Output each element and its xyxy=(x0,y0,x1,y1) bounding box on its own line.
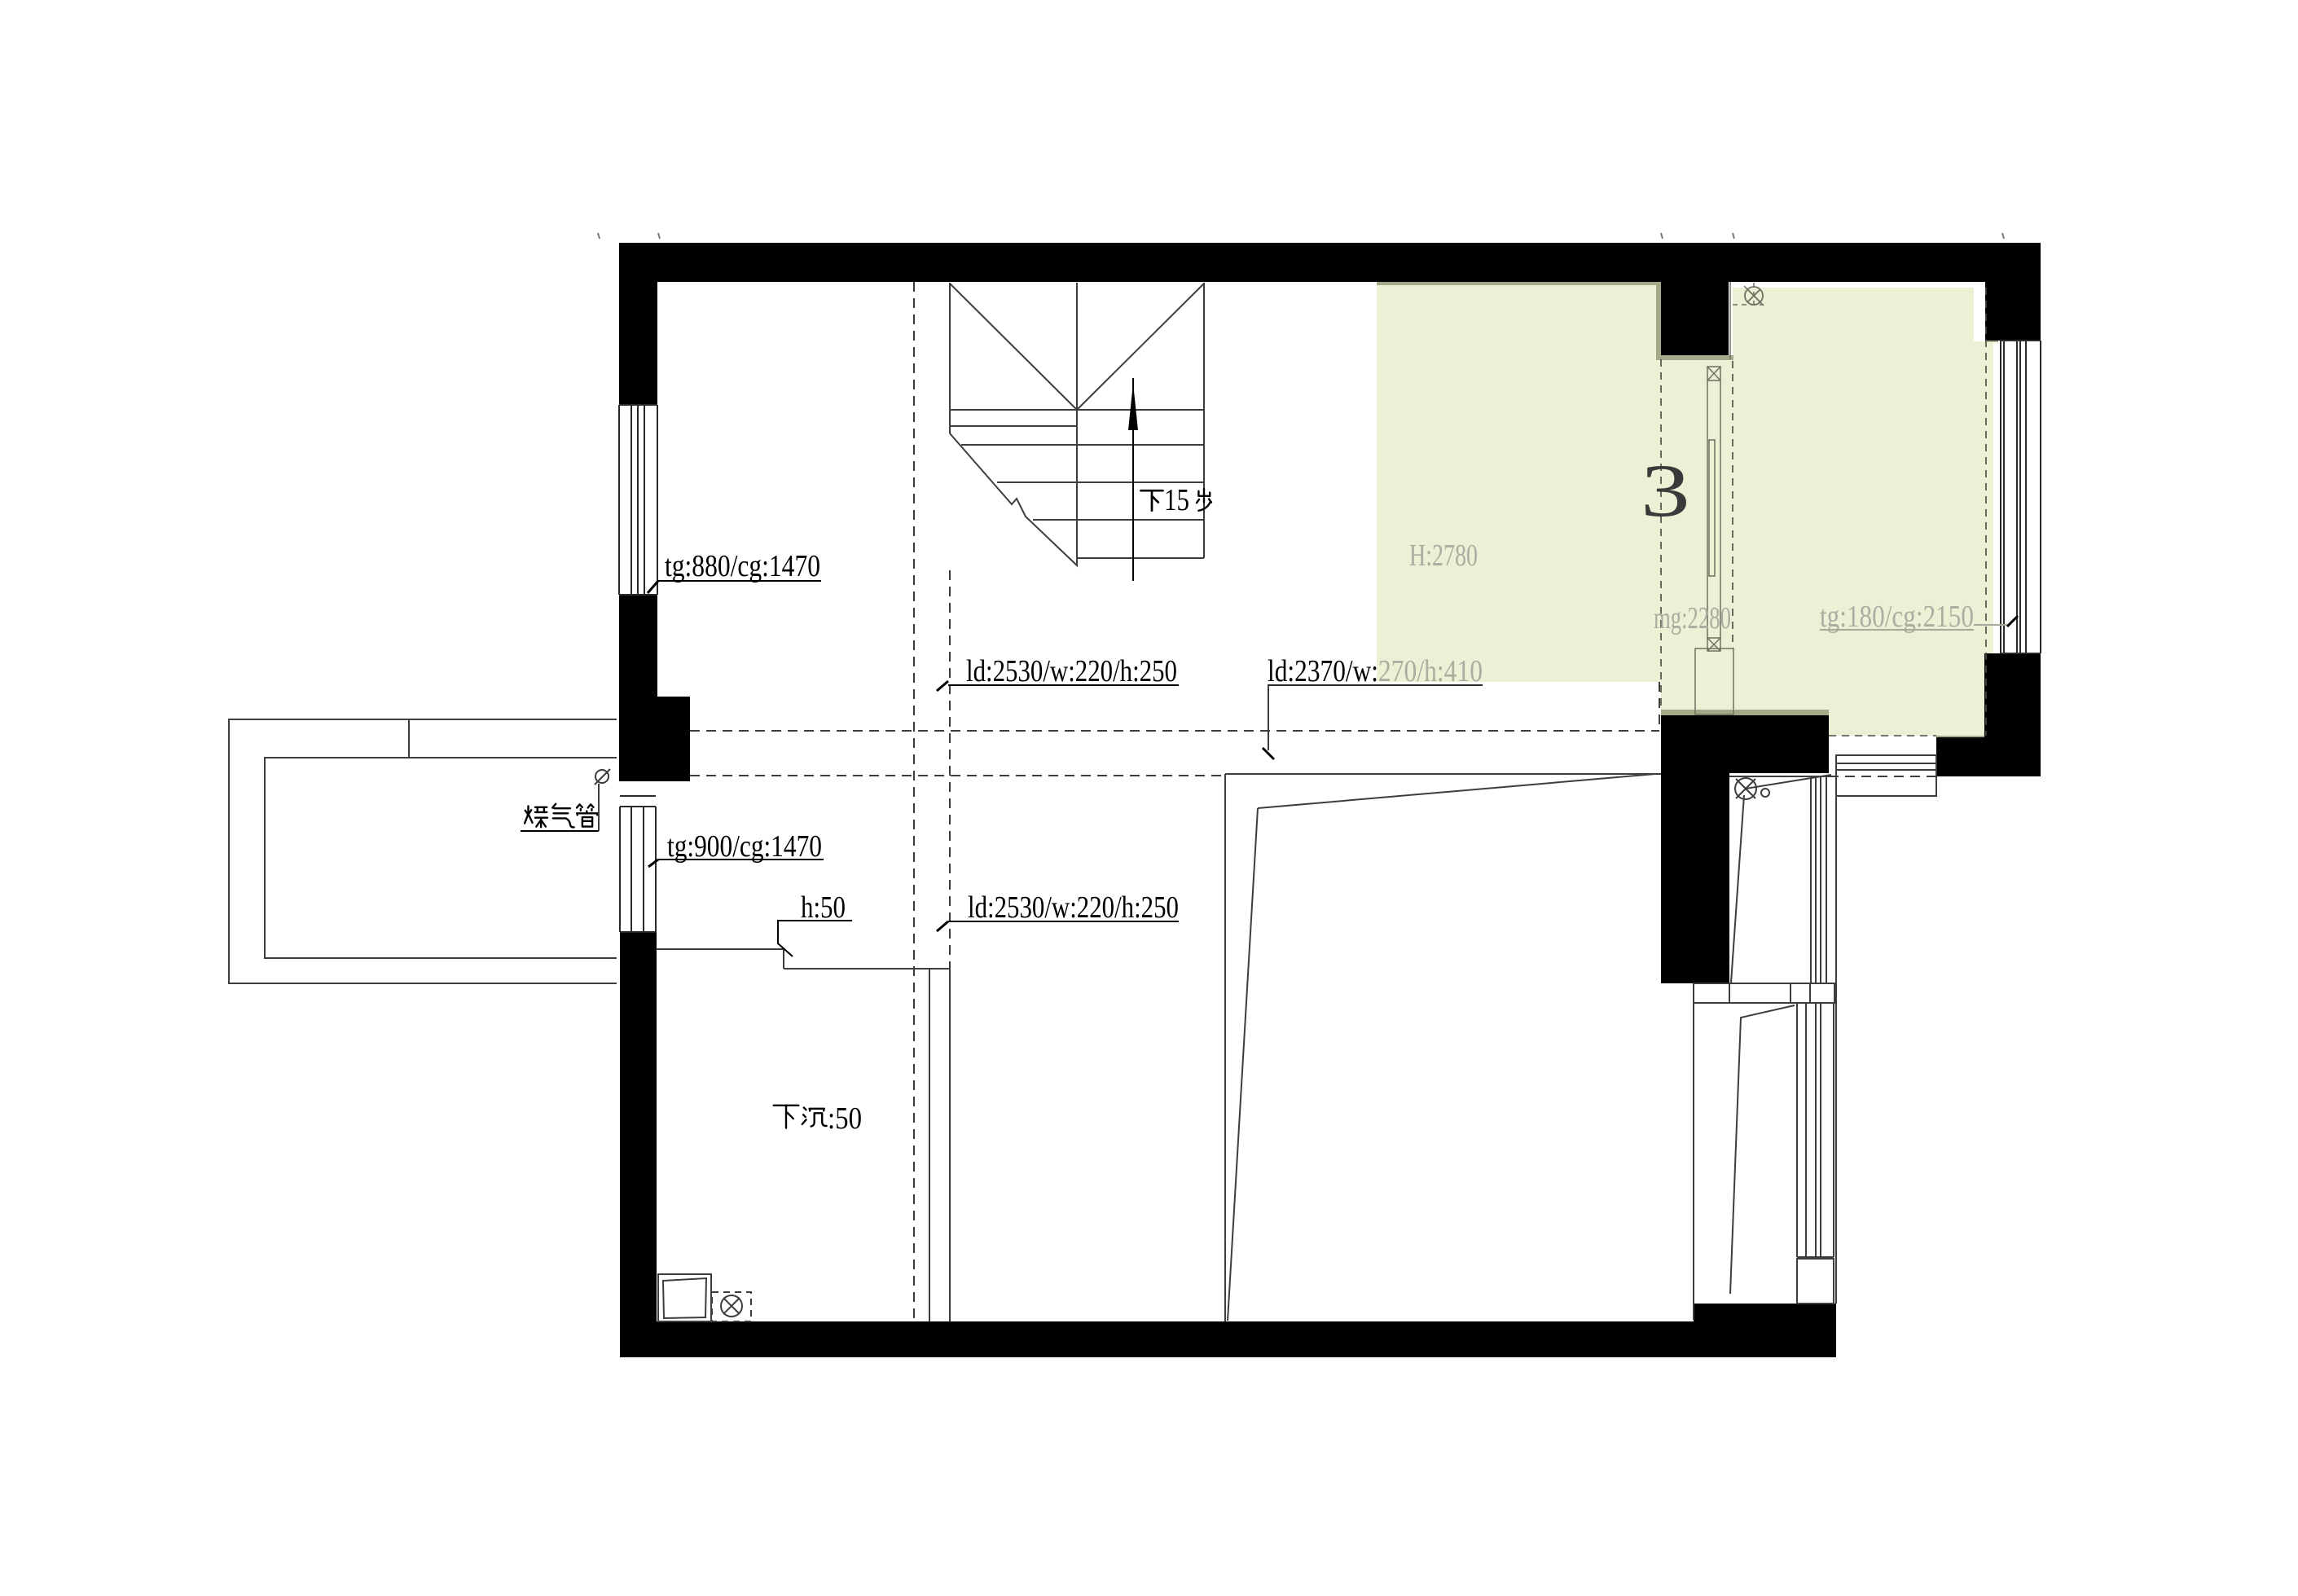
svg-text:H:2780: H:2780 xyxy=(1409,539,1478,573)
svg-text:mg:2280: mg:2280 xyxy=(1654,601,1731,635)
svg-text:3: 3 xyxy=(1641,450,1690,533)
svg-text:270/h:410: 270/h:410 xyxy=(1378,654,1483,688)
svg-text:tg:880/cg:1470: tg:880/cg:1470 xyxy=(665,549,820,583)
svg-text:ld:2370/w:: ld:2370/w: xyxy=(1268,654,1378,688)
svg-text::50: :50 xyxy=(828,1101,862,1136)
svg-text:ld:2530/w:220/h:250: ld:2530/w:220/h:250 xyxy=(968,890,1179,925)
svg-text:tg:180/cg:2150: tg:180/cg:2150 xyxy=(1820,600,1974,634)
svg-text:h:50: h:50 xyxy=(801,890,846,925)
svg-text:tg:900/cg:1470: tg:900/cg:1470 xyxy=(667,829,822,864)
svg-text:15: 15 xyxy=(1164,483,1189,517)
svg-text:ld:2530/w:220/h:250: ld:2530/w:220/h:250 xyxy=(966,654,1177,688)
